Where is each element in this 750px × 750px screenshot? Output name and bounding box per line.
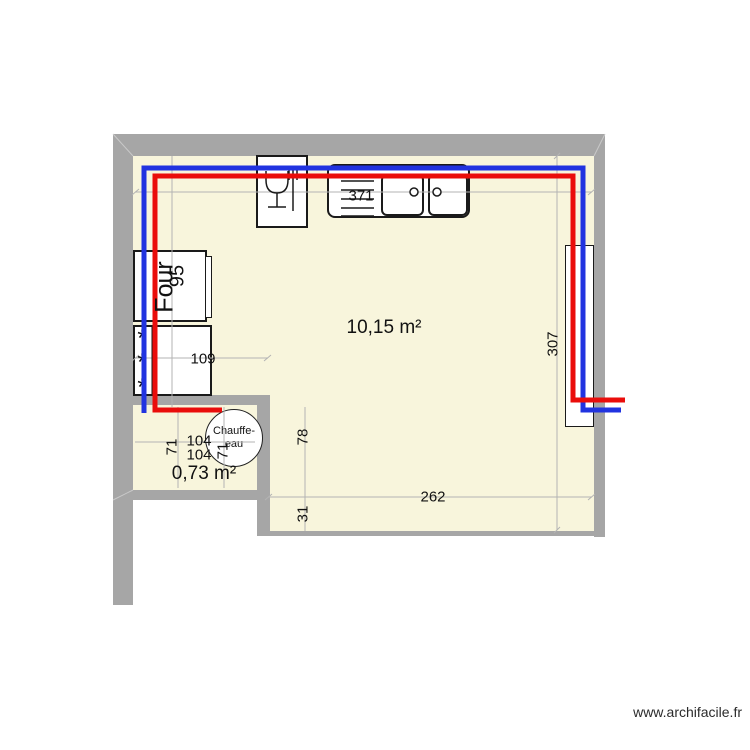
floor-plan-canvas: Chauffe- eau [0,0,750,750]
wall-miter-top-left [113,134,133,156]
dimension-label-71-right[interactable]: 71 [215,443,232,460]
area-label-utility: 0,73 m² [172,463,236,485]
hot-water-pipe[interactable] [155,176,625,410]
cold-water-pipe[interactable] [144,168,621,413]
dimension-label-109[interactable]: 109 [190,351,215,368]
dimension-label-371[interactable]: 371 [348,188,373,205]
dimension-label-307[interactable]: 307 [545,331,562,356]
watermark: www.archifacile.fr [633,704,742,720]
area-label-kitchen: 10,15 m² [347,317,422,339]
plan-overlay: * * * [0,0,750,750]
dimension-label-95[interactable]: 95 [167,265,190,287]
dimension-label-31[interactable]: 31 [295,506,312,523]
wall-miter-top-right [594,134,605,156]
faucet-hole-icon [433,188,441,196]
faucet-hole-icon [410,188,418,196]
wall-miter-bottom-left [113,490,133,500]
dimension-label-78[interactable]: 78 [295,429,312,446]
dimension-label-262[interactable]: 262 [420,489,445,506]
dimension-label-71-left[interactable]: 71 [164,439,181,456]
dimension-label-104-bottom[interactable]: 104 [186,447,211,464]
